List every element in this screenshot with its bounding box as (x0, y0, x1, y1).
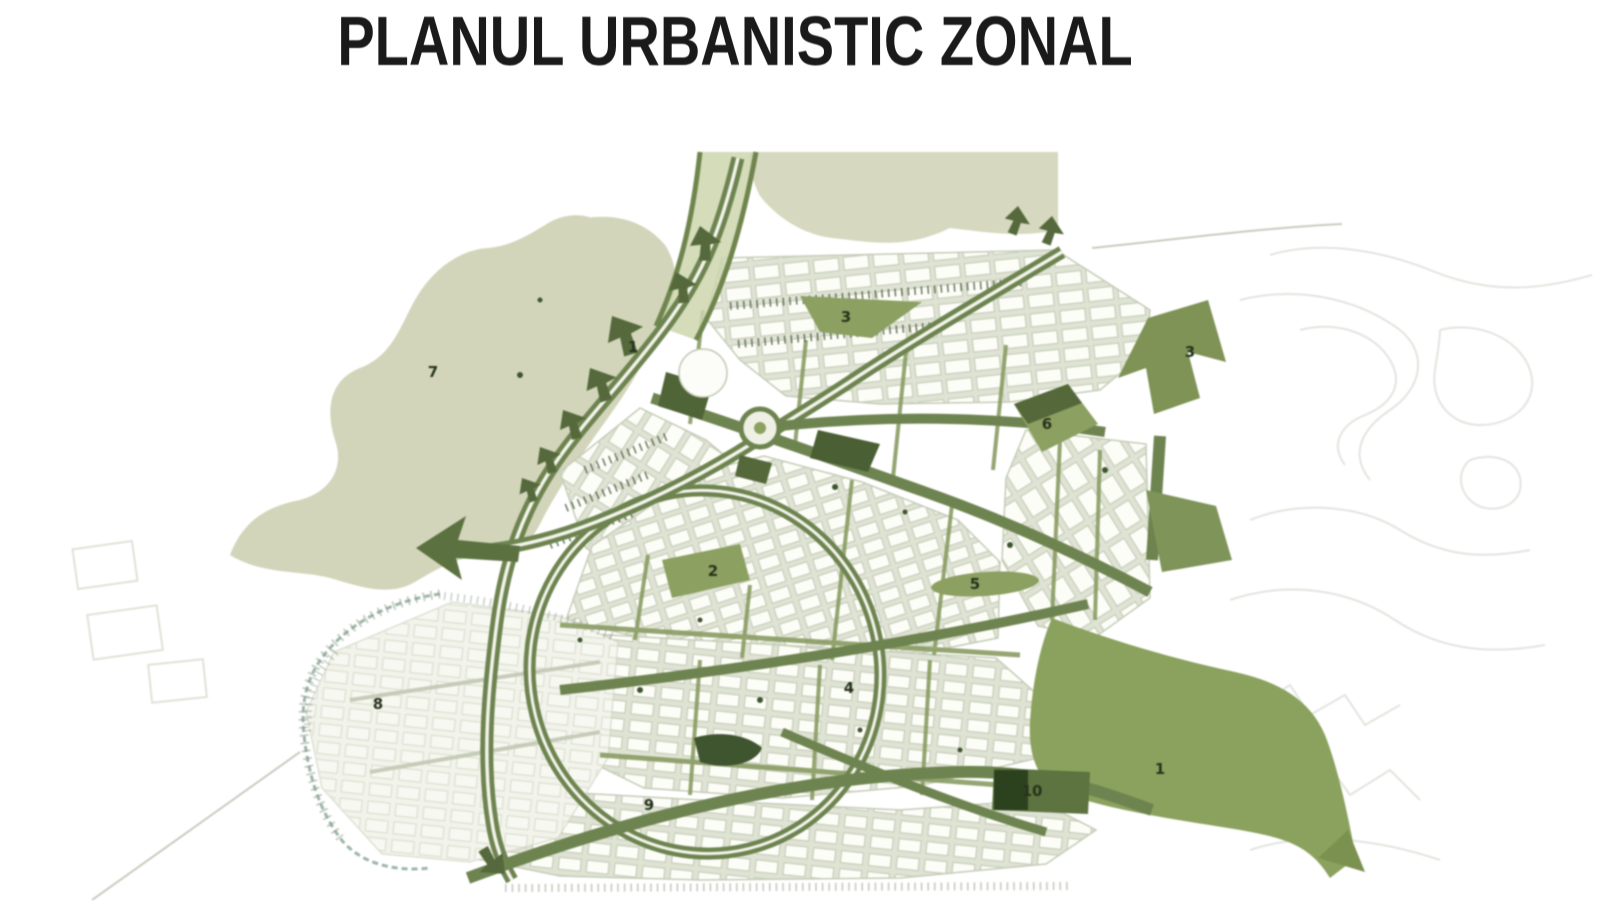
zone-label: 3 (841, 308, 851, 326)
zone-label: 1 (628, 338, 638, 356)
urban-plan-map: 7 1 3 3 6 2 5 4 8 9 10 1 (0, 0, 1600, 900)
zone-label: 4 (844, 679, 854, 697)
zone-label: 2 (708, 562, 718, 580)
zone-label: 6 (1042, 415, 1052, 433)
zone-label: 1 (1155, 760, 1165, 778)
faint-left-blocks (73, 541, 207, 703)
white-plaza-circle (679, 349, 727, 397)
plan-drawing: 7 1 3 3 6 2 5 4 8 9 10 1 (0, 0, 1600, 900)
page-title: PLANUL URBANISTIC ZONAL (95, 6, 1375, 76)
zone-label: 10 (1022, 782, 1043, 800)
zone-label: 7 (428, 363, 438, 381)
zone-label: 9 (644, 796, 654, 814)
zone-label: 3 (1185, 343, 1195, 361)
zone-label: 8 (373, 695, 383, 713)
zone-label: 5 (970, 575, 980, 593)
